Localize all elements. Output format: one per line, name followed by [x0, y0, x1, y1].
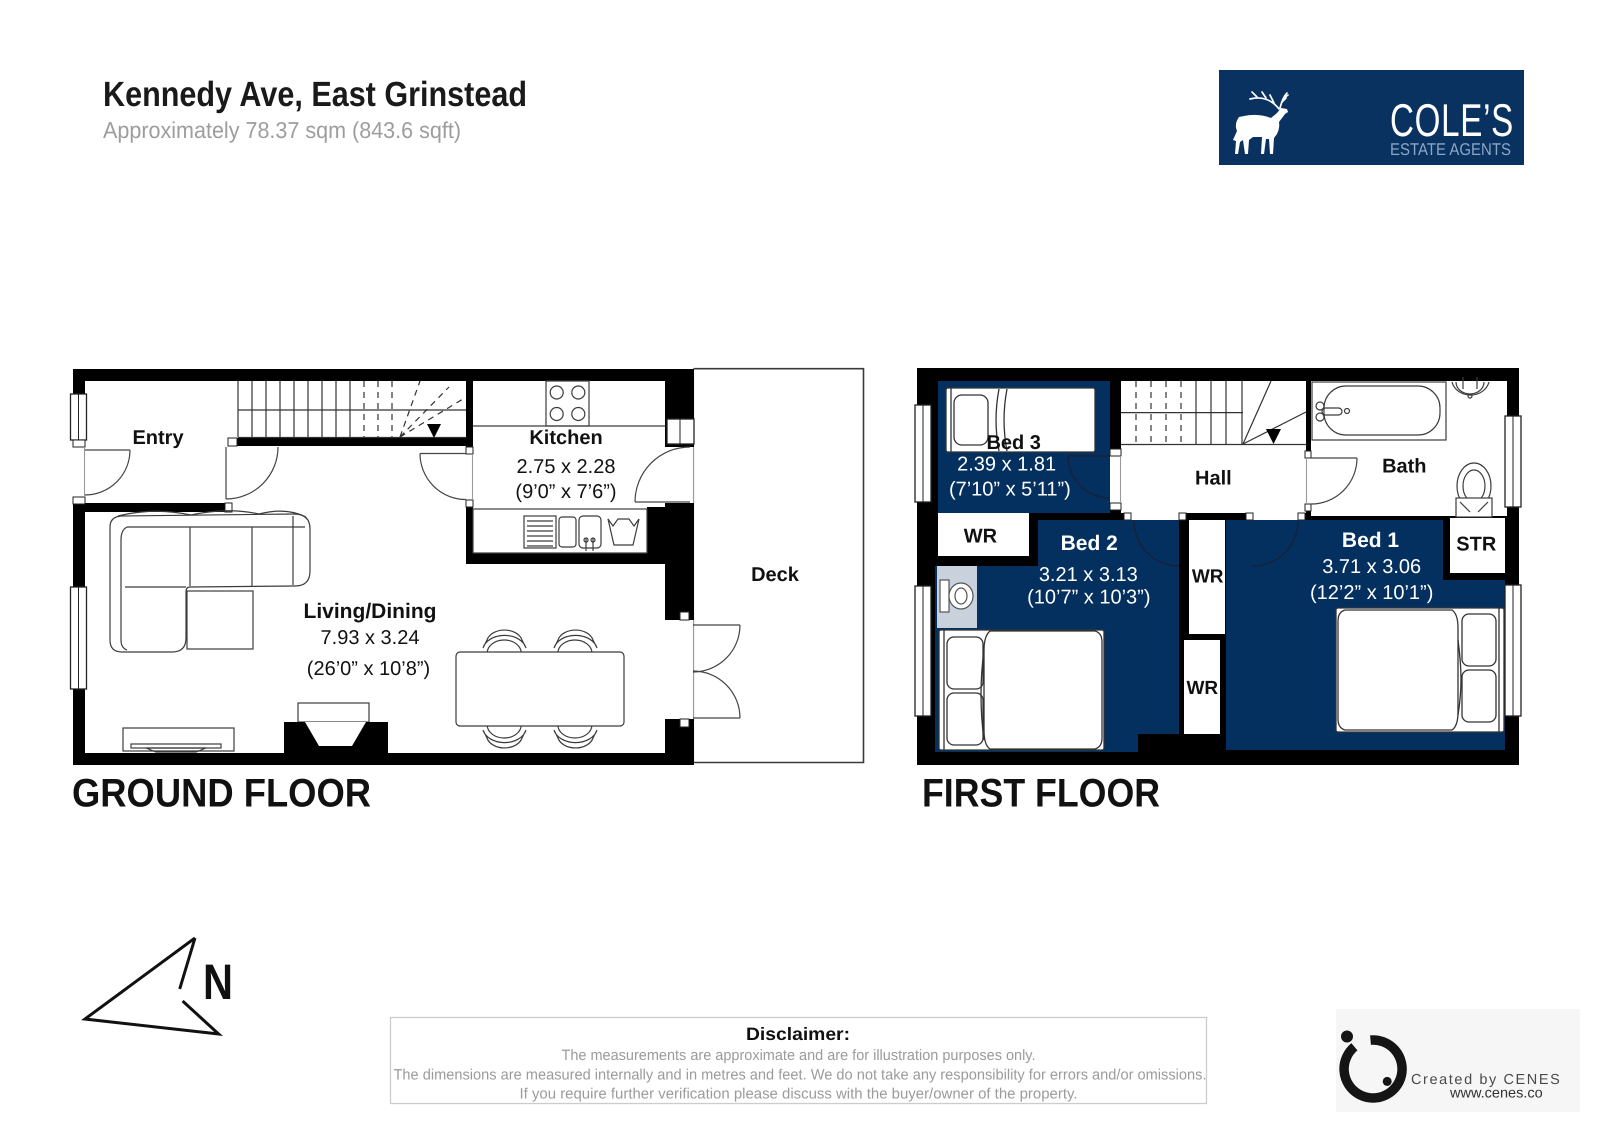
svg-text:STR: STR: [1456, 534, 1497, 556]
svg-text:FIRST FLOOR: FIRST FLOOR: [922, 772, 1160, 816]
svg-text:If you require further verific: If you require further verification plea…: [520, 1086, 1078, 1103]
svg-text:Kitchen: Kitchen: [529, 427, 602, 449]
svg-text:COLE’S: COLE’S: [1390, 94, 1514, 146]
svg-text:(7’10” x 5’11”): (7’10” x 5’11”): [949, 479, 1071, 501]
svg-text:7.93 x 3.24: 7.93 x 3.24: [321, 627, 420, 649]
svg-text:www.cenes.co: www.cenes.co: [1449, 1086, 1543, 1102]
svg-text:GROUND FLOOR: GROUND FLOOR: [72, 772, 371, 816]
svg-text:Bed 1: Bed 1: [1342, 529, 1400, 552]
svg-text:ESTATE AGENTS: ESTATE AGENTS: [1390, 140, 1511, 159]
svg-text:2.75 x 2.28: 2.75 x 2.28: [517, 456, 616, 478]
svg-text:The dimensions are measured in: The dimensions are measured internally a…: [394, 1067, 1207, 1084]
svg-text:Deck: Deck: [751, 564, 800, 586]
svg-text:3.71 x 3.06: 3.71 x 3.06: [1322, 556, 1421, 578]
svg-text:3.21 x 3.13: 3.21 x 3.13: [1039, 564, 1138, 586]
svg-text:WR: WR: [1186, 678, 1218, 699]
svg-text:(10’7” x 10’3”): (10’7” x 10’3”): [1027, 587, 1150, 609]
svg-text:(26’0” x 10’8”): (26’0” x 10’8”): [307, 658, 430, 680]
svg-text:Disclaimer:: Disclaimer:: [746, 1024, 850, 1044]
svg-text:Hall: Hall: [1195, 468, 1232, 490]
svg-text:Entry: Entry: [132, 427, 184, 449]
svg-text:(12’2” x 10’1”): (12’2” x 10’1”): [1310, 582, 1433, 604]
svg-text:Kennedy Ave, East Grinstead: Kennedy Ave, East Grinstead: [103, 75, 527, 114]
svg-text:WR: WR: [1192, 567, 1224, 588]
svg-text:Bath: Bath: [1382, 456, 1426, 478]
svg-text:The measurements are approxima: The measurements are approximate and are…: [562, 1047, 1036, 1064]
svg-text:N: N: [203, 954, 233, 1010]
svg-text:Bed 3: Bed 3: [986, 432, 1040, 454]
svg-text:Approximately 78.37 sqm (843.6: Approximately 78.37 sqm (843.6 sqft): [103, 117, 461, 143]
svg-text:2.39 x 1.81: 2.39 x 1.81: [957, 454, 1056, 476]
svg-text:Bed 2: Bed 2: [1061, 532, 1118, 555]
svg-text:Living/Dining: Living/Dining: [304, 600, 437, 623]
svg-text:WR: WR: [964, 526, 998, 548]
svg-text:(9’0” x 7’6”): (9’0” x 7’6”): [515, 481, 616, 503]
